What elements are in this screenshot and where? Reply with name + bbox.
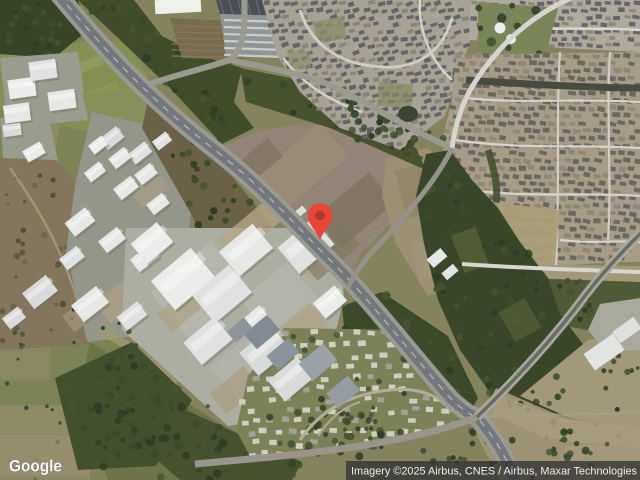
svg-text:Imagery ©2025 Airbus, CNES / A: Imagery ©2025 Airbus, CNES / Airbus, Max… bbox=[351, 466, 637, 478]
svg-text:Google: Google bbox=[9, 458, 62, 476]
